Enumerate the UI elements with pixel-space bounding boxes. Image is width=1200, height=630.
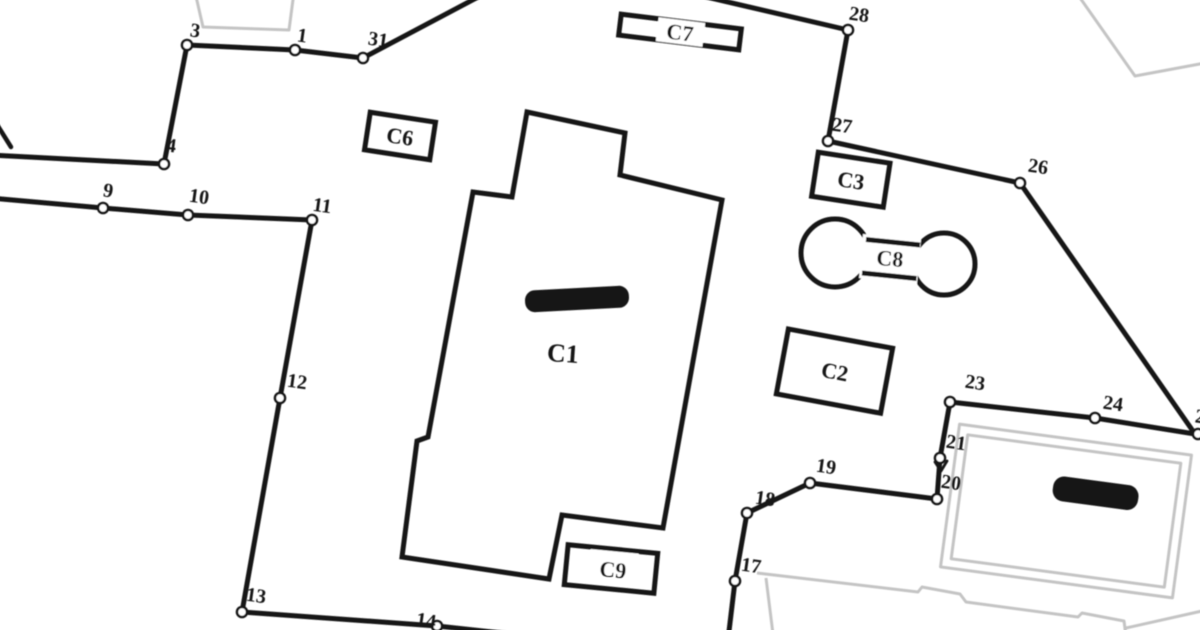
point-label-28: 28 xyxy=(848,3,871,28)
point-label-4: 4 xyxy=(165,134,178,157)
site-plan-map: C1 C6 C7 C3 C2 C9 xyxy=(0,0,1200,630)
point-label-17: 17 xyxy=(740,554,763,579)
neighbor-building-top-right-outline xyxy=(1078,0,1200,76)
vertex-marker-13 xyxy=(237,607,247,617)
point-label-12: 12 xyxy=(286,370,309,395)
neighbor-building-top-left-outline xyxy=(195,0,294,30)
point-label-26: 26 xyxy=(1027,155,1050,180)
boundary-line-main xyxy=(0,0,1195,630)
label-c8: C8 xyxy=(875,245,904,272)
label-c1: C1 xyxy=(546,338,580,369)
point-label-19: 19 xyxy=(815,455,838,480)
neighbor-building-bottom-left-edge xyxy=(766,578,773,630)
point-label-25-partial: 2 xyxy=(1194,405,1200,428)
label-c9: C9 xyxy=(598,556,627,583)
vertex-marker-25 xyxy=(1193,429,1200,439)
point-label-10: 10 xyxy=(188,185,211,210)
point-label-11: 11 xyxy=(311,194,333,218)
vertex-marker-17 xyxy=(730,576,740,586)
building-c6: C6 xyxy=(365,112,436,160)
vertex-marker-3 xyxy=(182,40,192,50)
neighbor-building-outer-outline xyxy=(941,424,1192,598)
point-label-1: 1 xyxy=(296,24,309,47)
vertex-marker-27 xyxy=(823,136,833,146)
building-c1-door-bar xyxy=(524,285,629,312)
pool-c8-left-circle xyxy=(801,219,869,287)
vertex-marker-20 xyxy=(932,494,942,504)
neighbor-building-inner-outline xyxy=(951,435,1181,587)
point-label-23: 23 xyxy=(964,371,987,396)
label-c6: C6 xyxy=(385,122,415,151)
vertex-marker-19 xyxy=(805,478,815,488)
point-label-27: 27 xyxy=(831,114,854,139)
label-c2: C2 xyxy=(819,357,850,386)
vertex-marker-21 xyxy=(935,453,945,463)
building-c7: C7 xyxy=(618,13,741,53)
label-c3: C3 xyxy=(836,166,866,195)
vertex-marker-24 xyxy=(1090,413,1100,423)
building-c9: C9 xyxy=(564,545,657,593)
boundary-stub-left-edge xyxy=(0,123,11,147)
vertex-marker-28 xyxy=(843,25,853,35)
point-label-31: 31 xyxy=(367,28,390,53)
point-label-9: 9 xyxy=(102,179,115,202)
point-label-24: 24 xyxy=(1102,392,1125,417)
building-c2: C2 xyxy=(776,329,892,413)
vertex-marker-26 xyxy=(1015,178,1025,188)
neighbor-building-bottom-right xyxy=(941,424,1192,598)
vertex-marker-31 xyxy=(358,53,368,63)
neighbor-building-bottom-right-edge xyxy=(1126,611,1200,628)
pool-c8: C8 xyxy=(801,219,975,295)
vertex-marker-10 xyxy=(183,210,193,220)
neighbor-building-door-bar xyxy=(1051,475,1140,511)
vertex-marker-9 xyxy=(98,203,108,213)
point-label-21: 21 xyxy=(945,431,968,456)
vertex-marker-4 xyxy=(159,159,169,169)
point-label-13: 13 xyxy=(245,584,268,609)
point-label-20: 20 xyxy=(940,471,963,496)
neighbor-building-bottom-outline xyxy=(757,573,1126,630)
site-plan-canvas: C1 C6 C7 C3 C2 C9 xyxy=(0,0,1200,630)
vertex-marker-18 xyxy=(742,508,752,518)
point-label-3: 3 xyxy=(189,19,202,42)
label-c7: C7 xyxy=(665,18,695,46)
vertex-marker-11 xyxy=(307,215,317,225)
building-c3: C3 xyxy=(812,152,890,207)
vertex-marker-23 xyxy=(945,397,955,407)
vertex-marker-12 xyxy=(275,393,285,403)
point-label-14: 14 xyxy=(415,609,438,630)
pool-c8-right-circle xyxy=(913,233,975,295)
point-label-18: 18 xyxy=(754,487,777,512)
